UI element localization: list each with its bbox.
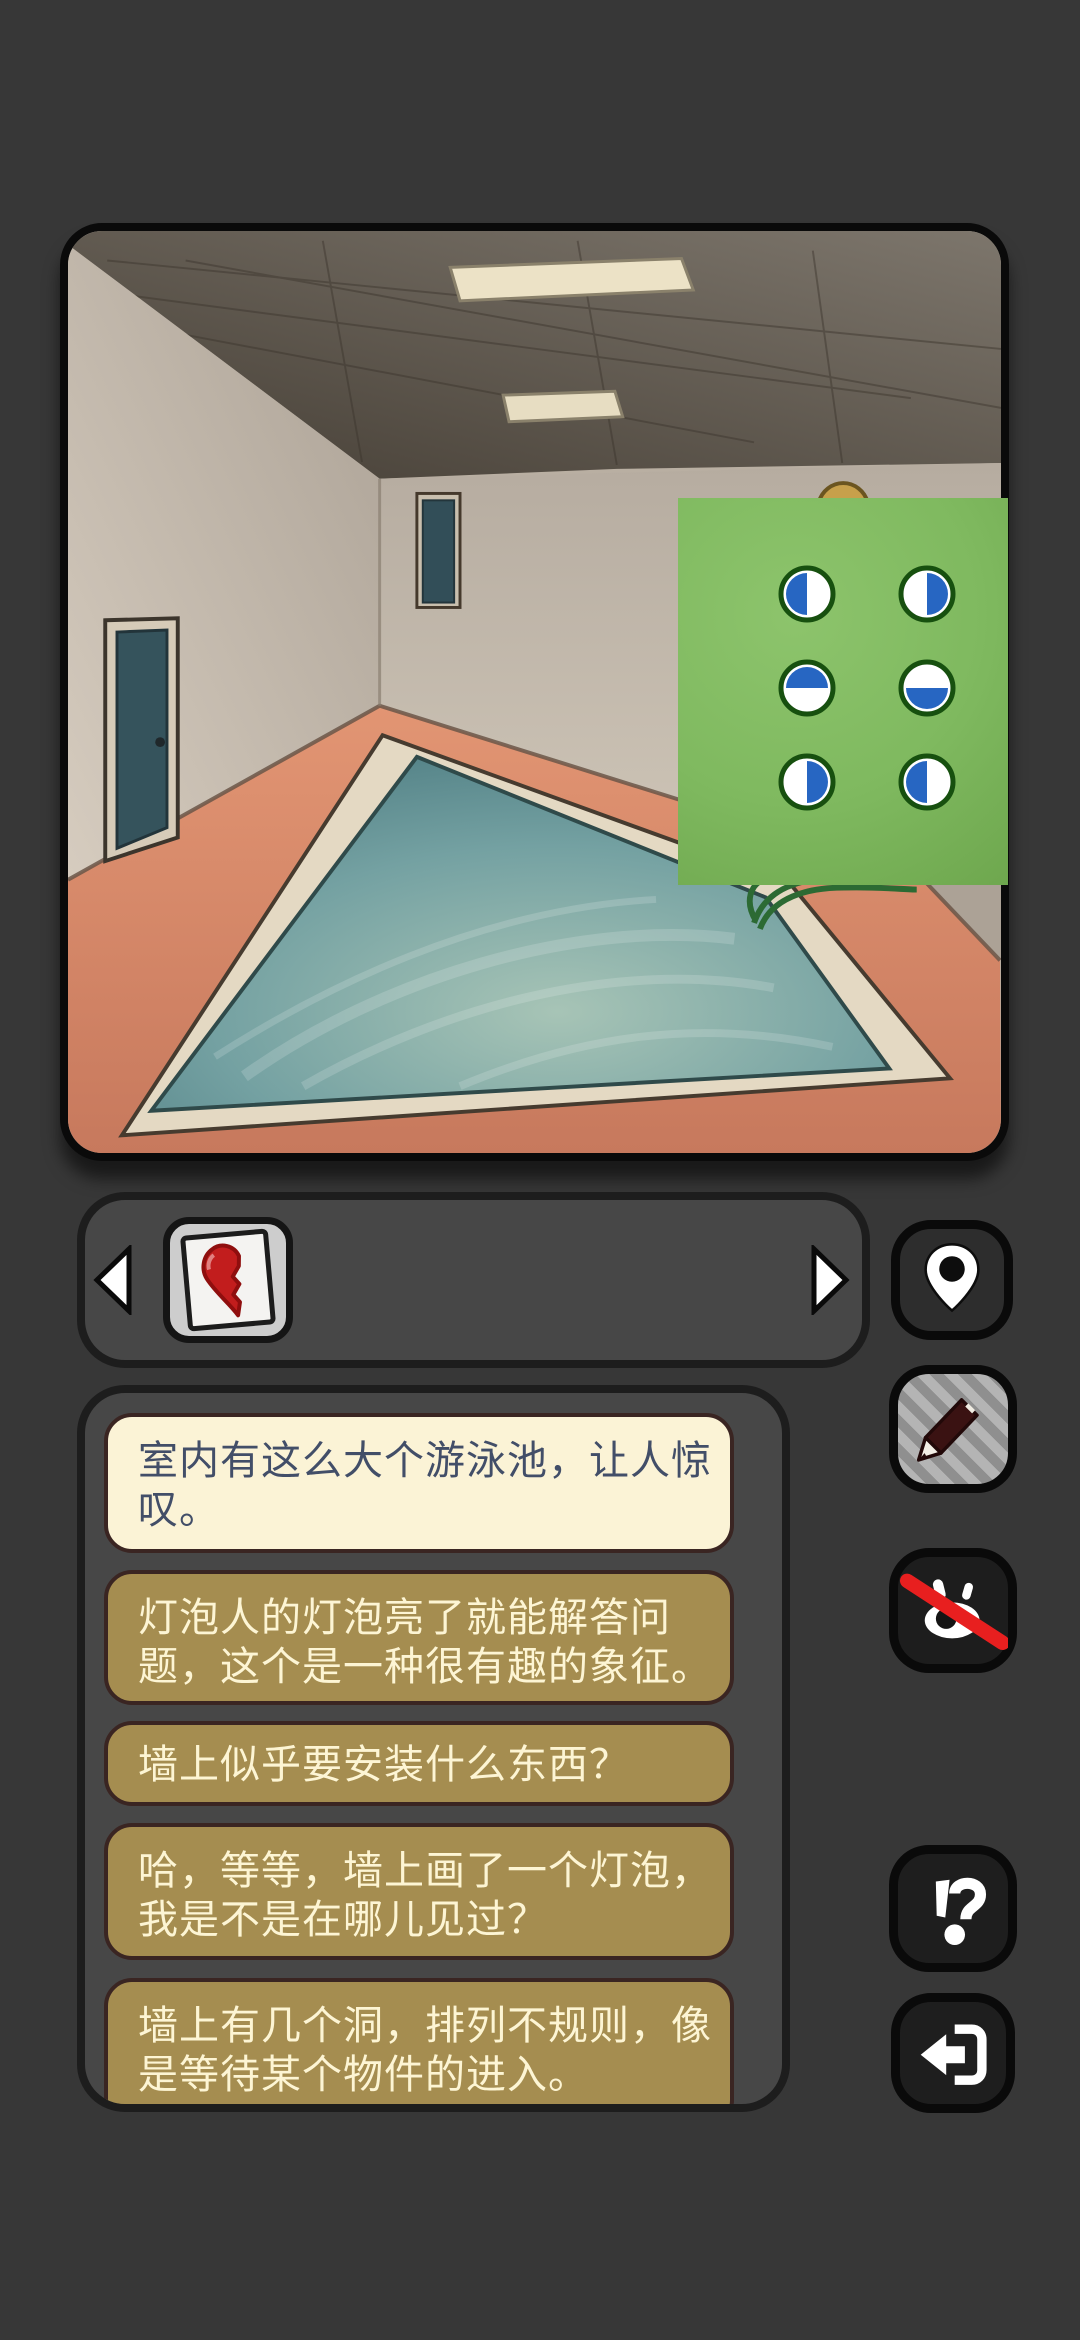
dialogue-line: 叹。 [138,1486,706,1535]
dialogue-bubble: 墙上有几个洞，排列不规则，像 是等待某个物件的进入。 [104,1978,734,2112]
puzzle-circle[interactable] [897,564,957,624]
dialogue-line: 室内有这么大个游泳池，让人惊 [138,1437,706,1486]
pencil-icon [898,1374,1008,1484]
inventory-item-slot[interactable] [163,1217,293,1343]
game-screen: 室内有这么大个游泳池，让人惊 叹。 灯泡人的灯泡亮了就能解答问 题，这个是一种很… [0,0,1080,2340]
arrow-left-icon[interactable] [93,1245,133,1315]
exit-arrow-icon [900,2002,1006,2104]
dialogue-line: 是等待某个物件的进入。 [138,2051,706,2100]
arrow-right-icon[interactable] [810,1245,850,1315]
puzzle-circle[interactable] [777,564,837,624]
hide-highlights-button[interactable] [889,1548,1017,1673]
exit-button[interactable] [891,1993,1015,2113]
dialogue-line: 题，这个是一种很有趣的象征。 [138,1643,706,1692]
puzzle-circle[interactable] [777,658,837,718]
dialogue-line: 我是不是在哪儿见过？ [138,1896,706,1945]
hint-button[interactable] [889,1845,1017,1972]
back-door [417,493,460,607]
inventory-bar [77,1192,870,1368]
map-pin-icon [900,1229,1004,1331]
dialogue-line: 墙上似乎要安装什么东西？ [138,1741,706,1790]
puzzle-circle[interactable] [897,752,957,812]
dialogue-bubble: 墙上似乎要安装什么东西？ [104,1721,734,1806]
dialogue-line: 墙上有几个洞，排列不规则，像 [138,2002,706,2051]
location-button[interactable] [891,1220,1013,1340]
half-heart-item-icon [180,1228,276,1331]
dialogue-bubble: 室内有这么大个游泳池，让人惊 叹。 [104,1413,734,1553]
dialogue-log-panel[interactable]: 室内有这么大个游泳池，让人惊 叹。 灯泡人的灯泡亮了就能解答问 题，这个是一种很… [77,1385,790,2112]
dialogue-bubble: 灯泡人的灯泡亮了就能解答问 题，这个是一种很有趣的象征。 [104,1570,734,1705]
dialogue-line: 灯泡人的灯泡亮了就能解答问 [138,1594,706,1643]
interrobang-icon [898,1854,1008,1963]
left-door [105,618,178,861]
puzzle-circle[interactable] [777,752,837,812]
half-circle-puzzle-panel[interactable] [678,498,1008,885]
dialogue-line: 哈，等等，墙上画了一个灯泡， [138,1847,706,1896]
puzzle-circle[interactable] [897,658,957,718]
edit-note-button[interactable] [889,1365,1017,1493]
dialogue-bubble: 哈，等等，墙上画了一个灯泡， 我是不是在哪儿见过？ [104,1823,734,1960]
eye-off-icon [898,1557,1008,1664]
